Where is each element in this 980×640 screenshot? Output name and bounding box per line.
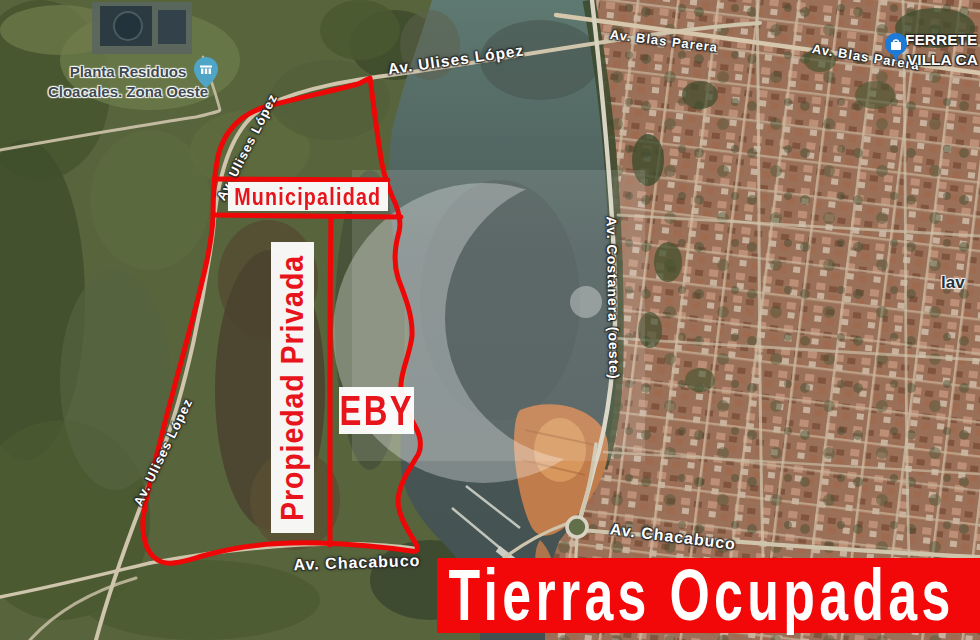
poi-label-ferreteria: FERRETE: [905, 31, 977, 49]
eby-label: EBY: [339, 387, 413, 434]
street-label-costanera: Av. Costanera (oeste): [604, 216, 623, 380]
poi-label-villa: VILLA CA: [907, 51, 978, 69]
municipal-strip-divider: [214, 179, 388, 180]
propiedad-privada-label: Propiedad Privada: [275, 254, 311, 520]
banner-title: Tierras Ocupadas: [437, 558, 955, 633]
eby-box: EBY: [339, 387, 414, 434]
municipalidad-label: Municipalidad: [234, 183, 381, 211]
sections-divider: [213, 215, 401, 217]
propiedad-privada-box: Propiedad Privada: [271, 242, 314, 533]
private-eby-divider: [330, 217, 331, 545]
municipalidad-box: Municipalidad: [228, 182, 388, 211]
plant-building-icon: [200, 66, 212, 75]
tierras-ocupadas-banner: Tierras Ocupadas: [437, 558, 980, 633]
annotated-satellite-map: Av. Ulises López Av. Ulises López Av. Ul…: [0, 0, 980, 640]
poi-label-lavadero-partial: lav: [941, 272, 965, 294]
